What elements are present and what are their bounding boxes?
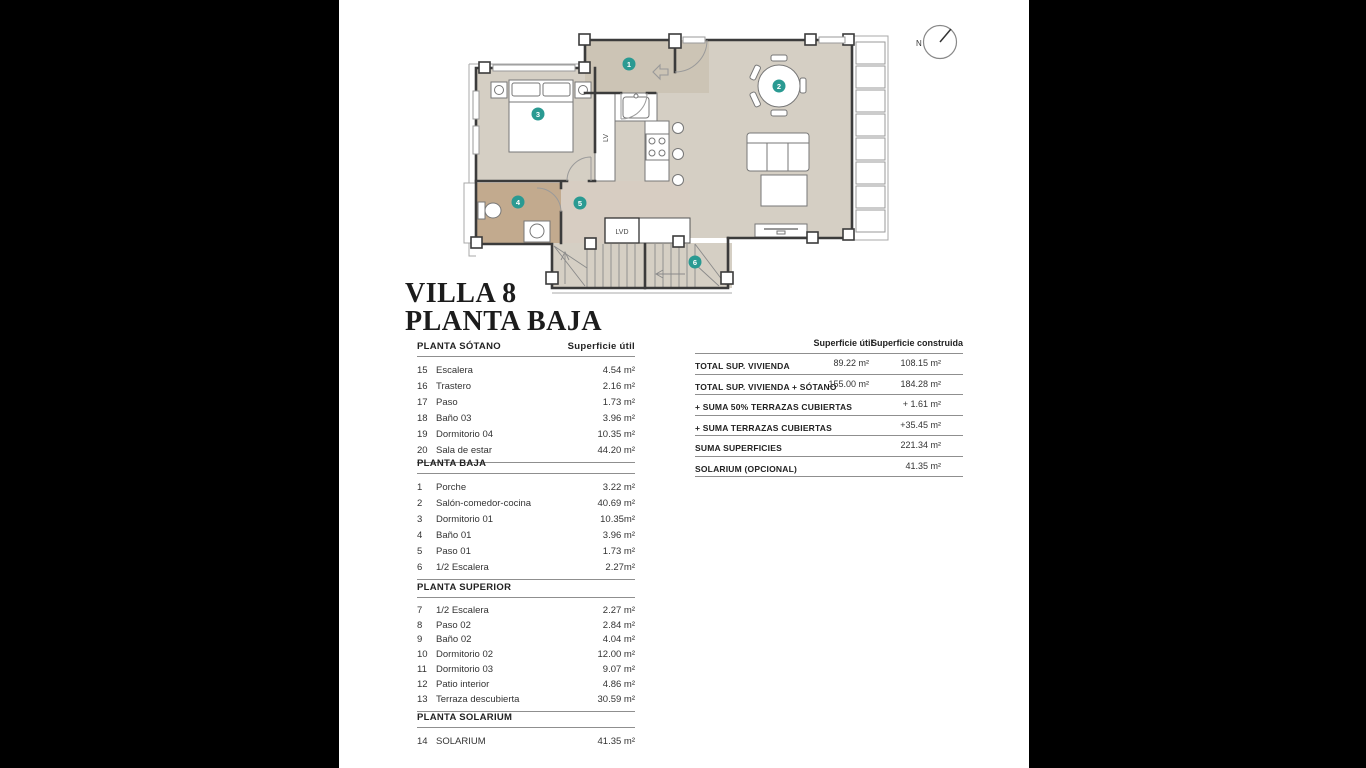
row-number: 6 <box>417 562 436 573</box>
stool <box>673 175 684 186</box>
row-value: 4.54 m² <box>603 365 635 376</box>
row-label: Salón-comedor-cocina <box>436 498 598 509</box>
table-row: 11Dormitorio 039.07 m² <box>417 662 635 677</box>
summary-header-row: Superficie útilSuperficie construida <box>695 336 963 354</box>
row-label: Baño 01 <box>436 530 603 541</box>
north-compass-icon: N <box>916 26 957 59</box>
row-label: 1/2 Escalera <box>436 562 605 573</box>
summary-row-label: TOTAL SUP. VIVIENDA + SÓTANO <box>695 382 837 392</box>
svg-text:1: 1 <box>627 60 631 69</box>
row-number: 11 <box>417 664 436 675</box>
row-value: 3.96 m² <box>603 413 635 424</box>
row-value: 4.04 m² <box>603 634 635 645</box>
row-value: 9.07 m² <box>603 664 635 675</box>
north-label: N <box>916 39 922 48</box>
room-marker-1: 1 <box>623 58 636 71</box>
summary-row-label: SOLARIUM (OPCIONAL) <box>695 464 797 474</box>
row-number: 8 <box>417 620 436 631</box>
row-number: 1 <box>417 482 436 493</box>
row-value: 4.86 m² <box>603 679 635 690</box>
summary-row-label: + SUMA 50% TERRAZAS CUBIERTAS <box>695 402 852 412</box>
row-number: 14 <box>417 736 436 747</box>
laundry-label: LVD <box>615 229 628 236</box>
table-row: 10Dormitorio 0212.00 m² <box>417 647 635 662</box>
svg-text:5: 5 <box>578 199 582 208</box>
summary-construida-value: +35.45 m² <box>900 420 941 430</box>
table-heading-label: PLANTA SÓTANO <box>417 341 501 352</box>
tv-console <box>755 224 807 237</box>
plan-sheet: LV LVD 1 2 3 4 5 6 N VILLA 8 PLANTA BAJA… <box>339 0 1029 768</box>
table-heading-label: PLANTA SUPERIOR <box>417 582 511 593</box>
summary-col1-header: Superficie útil <box>813 338 873 348</box>
table-rows: 14SOLARIUM41.35 m² <box>417 728 635 753</box>
row-number: 19 <box>417 429 436 440</box>
row-number: 16 <box>417 381 436 392</box>
summary-util-value: 89.22 m² <box>833 358 869 368</box>
summary-row: + SUMA TERRAZAS CUBIERTAS+35.45 m² <box>695 416 963 437</box>
table-rows: 15Escalera4.54 m²16Trastero2.16 m²17Paso… <box>417 357 635 463</box>
table-row: 19Dormitorio 0410.35 m² <box>417 426 635 442</box>
room-marker-2: 2 <box>773 80 786 93</box>
table-row: 8Paso 022.84 m² <box>417 618 635 633</box>
row-number: 20 <box>417 445 436 456</box>
summary-table: Superficie útilSuperficie construidaTOTA… <box>695 336 963 477</box>
row-number: 15 <box>417 365 436 376</box>
table-row: 71/2 Escalera2.27 m² <box>417 603 635 618</box>
summary-construida-value: 41.35 m² <box>905 461 941 471</box>
table-row: 14SOLARIUM41.35 m² <box>417 733 635 749</box>
row-label: Trastero <box>436 381 603 392</box>
row-label: Dormitorio 02 <box>436 649 598 660</box>
summary-row: TOTAL SUP. VIVIENDA + SÓTANO155.00 m²184… <box>695 375 963 396</box>
table-heading-label: PLANTA SOLARIUM <box>417 712 512 723</box>
row-value: 10.35m² <box>600 514 635 525</box>
page-title: VILLA 8 PLANTA BAJA <box>405 280 602 336</box>
toilet <box>478 202 501 219</box>
summary-row-label: TOTAL SUP. VIVIENDA <box>695 361 790 371</box>
row-label: 1/2 Escalera <box>436 605 603 616</box>
summary-construida-value: 221.34 m² <box>900 440 941 450</box>
table-rows: 1Porche3.22 m²2Salón-comedor-cocina40.69… <box>417 474 635 580</box>
table-row: 5Paso 011.73 m² <box>417 543 635 559</box>
value-column-header: Superficie útil <box>568 341 635 352</box>
row-label: Baño 03 <box>436 413 603 424</box>
row-label: Dormitorio 04 <box>436 429 598 440</box>
row-label: Escalera <box>436 365 603 376</box>
summary-construida-value: 108.15 m² <box>900 358 941 368</box>
row-number: 7 <box>417 605 436 616</box>
table-planta-superior: PLANTA SUPERIOR71/2 Escalera2.27 m²8Paso… <box>417 582 635 712</box>
stool <box>673 149 684 160</box>
table-heading: PLANTA BAJA <box>417 458 635 474</box>
summary-util-value: 155.00 m² <box>828 379 869 389</box>
table-row: 17Paso1.73 m² <box>417 394 635 410</box>
table-row: 61/2 Escalera2.27m² <box>417 559 635 575</box>
room-marker-3: 3 <box>532 108 545 121</box>
row-value: 2.84 m² <box>603 620 635 631</box>
row-label: Sala de estar <box>436 445 598 456</box>
room-marker-6: 6 <box>689 256 702 269</box>
row-number: 9 <box>417 634 436 645</box>
row-value: 41.35 m² <box>598 736 636 747</box>
row-number: 18 <box>417 413 436 424</box>
row-value: 3.22 m² <box>603 482 635 493</box>
row-number: 3 <box>417 514 436 525</box>
row-label: Patio interior <box>436 679 603 690</box>
row-value: 3.96 m² <box>603 530 635 541</box>
svg-text:3: 3 <box>536 110 540 119</box>
summary-row: SUMA SUPERFICIES221.34 m² <box>695 436 963 457</box>
sofa <box>747 133 809 171</box>
row-value: 1.73 m² <box>603 546 635 557</box>
row-number: 13 <box>417 694 436 705</box>
stool <box>673 123 684 134</box>
table-row: 20Sala de estar44.20 m² <box>417 442 635 458</box>
summary-construida-value: + 1.61 m² <box>903 399 941 409</box>
summary-row: SOLARIUM (OPCIONAL)41.35 m² <box>695 457 963 478</box>
row-number: 17 <box>417 397 436 408</box>
summary-row-label: + SUMA TERRAZAS CUBIERTAS <box>695 423 832 433</box>
summary-row: TOTAL SUP. VIVIENDA89.22 m²108.15 m² <box>695 354 963 375</box>
table-heading: PLANTA SUPERIOR <box>417 582 635 598</box>
table-row: 2Salón-comedor-cocina40.69 m² <box>417 495 635 511</box>
row-value: 30.59 m² <box>598 694 636 705</box>
row-number: 4 <box>417 530 436 541</box>
row-label: Paso <box>436 397 603 408</box>
title-line-2: PLANTA BAJA <box>405 308 602 336</box>
coffee-table <box>761 175 807 206</box>
row-value: 2.16 m² <box>603 381 635 392</box>
row-value: 1.73 m² <box>603 397 635 408</box>
floor-plan: LV LVD 1 2 3 4 5 6 N <box>427 6 983 298</box>
table-heading-label: PLANTA BAJA <box>417 458 486 469</box>
table-planta-baja: PLANTA BAJA1Porche3.22 m²2Salón-comedor-… <box>417 458 635 580</box>
svg-text:2: 2 <box>777 82 781 91</box>
dishwasher-label: LV <box>603 134 610 142</box>
row-number: 5 <box>417 546 436 557</box>
room-marker-4: 4 <box>512 196 525 209</box>
table-heading: PLANTA SÓTANOSuperficie útil <box>417 341 635 357</box>
table-row: 9Baño 024.04 m² <box>417 633 635 648</box>
room-marker-5: 5 <box>574 197 587 210</box>
table-row: 15Escalera4.54 m² <box>417 362 635 378</box>
table-rows: 71/2 Escalera2.27 m²8Paso 022.84 m²9Baño… <box>417 598 635 712</box>
bathroom-sink <box>524 221 550 242</box>
row-label: Terraza descubierta <box>436 694 598 705</box>
row-label: Paso 02 <box>436 620 603 631</box>
row-label: SOLARIUM <box>436 736 598 747</box>
row-value: 10.35 m² <box>598 429 636 440</box>
row-label: Porche <box>436 482 603 493</box>
row-label: Dormitorio 03 <box>436 664 603 675</box>
row-value: 40.69 m² <box>598 498 636 509</box>
summary-row-label: SUMA SUPERFICIES <box>695 443 782 453</box>
row-value: 12.00 m² <box>598 649 636 660</box>
table-row: 12Patio interior4.86 m² <box>417 677 635 692</box>
table-row: 18Baño 033.96 m² <box>417 410 635 426</box>
row-value: 2.27m² <box>605 562 635 573</box>
row-label: Paso 01 <box>436 546 603 557</box>
terrace-steps <box>856 42 885 232</box>
table-row: 16Trastero2.16 m² <box>417 378 635 394</box>
svg-text:6: 6 <box>693 258 697 267</box>
row-value: 44.20 m² <box>598 445 636 456</box>
table-row: 13Terraza descubierta30.59 m² <box>417 692 635 707</box>
row-label: Dormitorio 01 <box>436 514 600 525</box>
screen: { "title": { "line1": "VILLA 8", "line2"… <box>0 0 1366 768</box>
row-value: 2.27 m² <box>603 605 635 616</box>
row-number: 2 <box>417 498 436 509</box>
summary-col2-header: Superficie construida <box>871 338 963 348</box>
title-line-1: VILLA 8 <box>405 280 602 308</box>
row-label: Baño 02 <box>436 634 603 645</box>
table-row: 1Porche3.22 m² <box>417 479 635 495</box>
table-planta-sotano: PLANTA SÓTANOSuperficie útil15Escalera4.… <box>417 341 635 463</box>
table-row: 4Baño 013.96 m² <box>417 527 635 543</box>
summary-construida-value: 184.28 m² <box>900 379 941 389</box>
table-planta-solarium: PLANTA SOLARIUM14SOLARIUM41.35 m² <box>417 712 635 753</box>
row-number: 10 <box>417 649 436 660</box>
table-heading: PLANTA SOLARIUM <box>417 712 635 728</box>
summary-row: + SUMA 50% TERRAZAS CUBIERTAS+ 1.61 m² <box>695 395 963 416</box>
row-number: 12 <box>417 679 436 690</box>
table-row: 3Dormitorio 0110.35m² <box>417 511 635 527</box>
porch-floor <box>585 40 709 93</box>
